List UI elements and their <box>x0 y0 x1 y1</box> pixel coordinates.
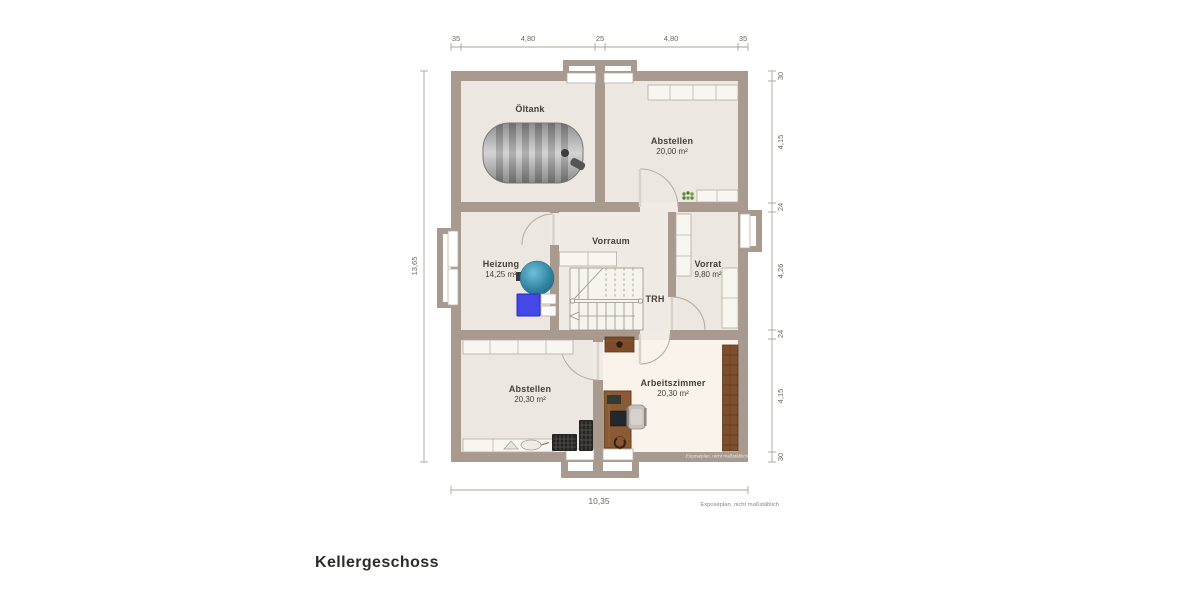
dim-label-left-0: 13,65 <box>410 257 419 276</box>
floorplan-canvas: Öltank Abstellen 20,00 m² Vorraum Heizun… <box>0 0 1200 600</box>
wardrobe-icon <box>723 345 739 451</box>
watermark: Exposéplan, nicht maßstäblich <box>686 454 749 459</box>
room-area-abstellen-top: 20,00 m² <box>656 147 688 156</box>
shelf-vorrat-left <box>676 214 691 276</box>
room-label-abstellen-bottom: Abstellen <box>509 384 551 394</box>
dimension-top: 35 4,80 25 4,80 35 <box>451 34 748 51</box>
dim-label-right-6: 30 <box>776 453 785 461</box>
monitor-icon <box>611 411 629 426</box>
room-label-arbeitszimmer: Arbeitszimmer <box>640 378 705 388</box>
dim-label-right-5: 4,15 <box>776 389 785 404</box>
dim-label-right-0: 30 <box>776 72 785 80</box>
window-left-lower <box>448 269 458 305</box>
dim-label-top-2: 25 <box>596 34 604 43</box>
floor-title: Kellergeschoss <box>315 554 439 571</box>
room-label-abstellen-top: Abstellen <box>651 136 693 146</box>
oil-tank-icon <box>483 123 586 183</box>
window-bottom-right <box>603 449 633 460</box>
shelf-abstellen-top <box>648 85 738 100</box>
heater-icon <box>517 294 540 316</box>
room-label-trh: TRH <box>645 294 664 304</box>
dim-label-top-0: 35 <box>452 34 460 43</box>
dim-label-right-4: 24 <box>776 330 785 338</box>
shelf-abstellen-top-small <box>697 190 738 202</box>
dimension-left: 13,65 <box>410 71 428 462</box>
shelf-abstellen-bottom <box>463 340 573 354</box>
dimension-right: 30 4,15 24 4,26 24 4,15 30 <box>768 71 785 462</box>
shelf-vorraum <box>560 252 617 266</box>
room-label-vorrat: Vorrat <box>694 259 721 269</box>
window-left-upper <box>448 231 458 267</box>
wastebasket-icon <box>614 437 626 449</box>
door-opening-abstellen-top <box>640 202 678 212</box>
room-area-heizung: 14,25 m² <box>485 270 517 279</box>
room-area-arbeitszimmer: 20,30 m² <box>657 389 689 398</box>
window-right <box>740 214 750 248</box>
dim-label-top-4: 35 <box>739 34 747 43</box>
dim-label-right-2: 24 <box>776 203 785 211</box>
radiator-icon-1 <box>552 434 577 451</box>
cabinet-icon <box>605 337 634 352</box>
staircase <box>570 268 643 330</box>
shelf-vorrat-right <box>722 268 738 328</box>
dim-label-top-1: 4,80 <box>521 34 536 43</box>
room-area-vorrat: 9,80 m² <box>694 270 721 279</box>
dim-label-bottom-0: 10,35 <box>588 496 610 506</box>
room-label-vorraum: Vorraum <box>592 236 630 246</box>
door-opening-arbeitszimmer <box>640 330 670 340</box>
radiator-icon-2 <box>579 420 593 451</box>
dim-label-right-3: 4,26 <box>776 264 785 279</box>
room-label-oeltank: Öltank <box>515 104 545 114</box>
desk-item-icon <box>607 395 621 404</box>
boiler-icon <box>520 261 554 295</box>
office-chair-icon <box>627 405 647 429</box>
footnote: Exposéplan, nicht maßstäblich <box>700 502 779 508</box>
room-label-heizung: Heizung <box>483 259 519 269</box>
dim-label-right-1: 4,15 <box>776 135 785 150</box>
dim-label-top-3: 4,80 <box>664 34 679 43</box>
laundry-counter <box>463 439 553 452</box>
room-area-abstellen-bottom: 20,30 m² <box>514 395 546 404</box>
window-top-left <box>567 73 596 83</box>
floorplan-page: Öltank Abstellen 20,00 m² Vorraum Heizun… <box>0 0 1200 600</box>
window-top-right <box>604 73 633 83</box>
